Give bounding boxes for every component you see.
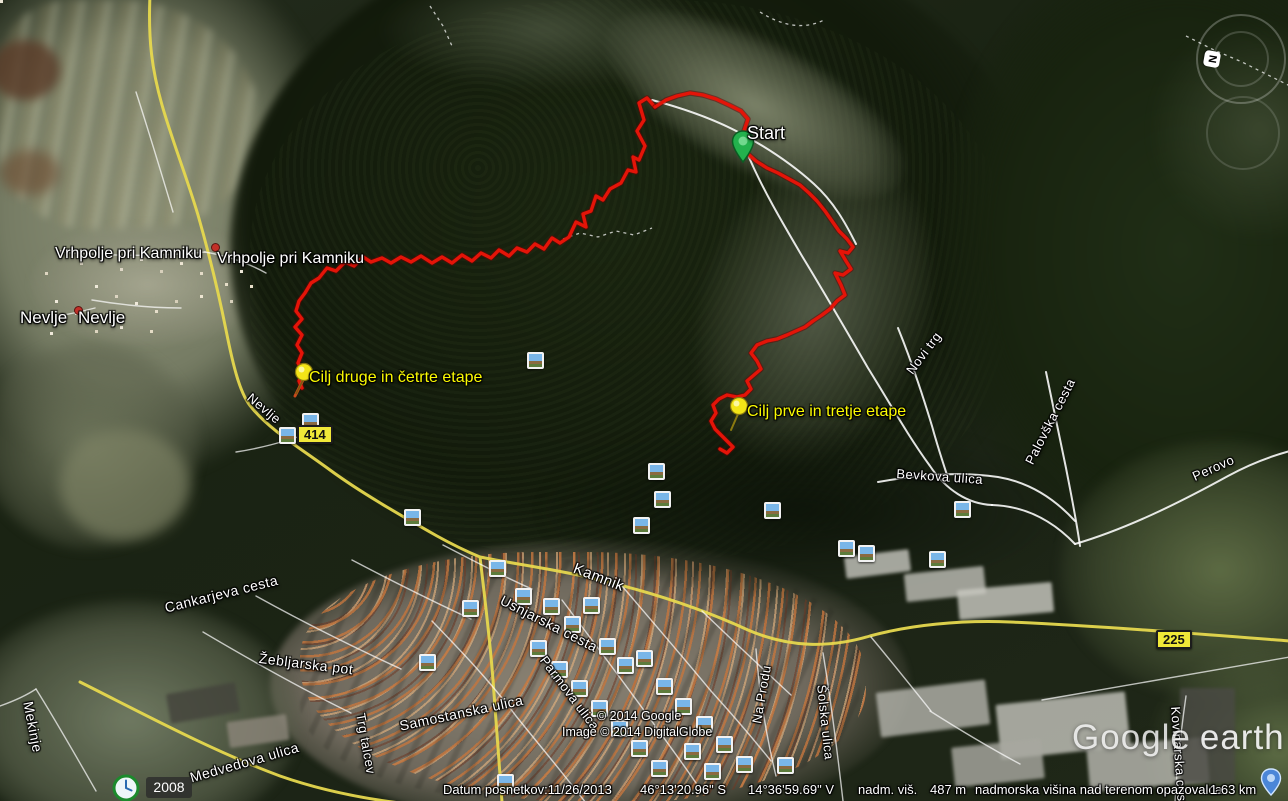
photo-icon[interactable] bbox=[648, 463, 665, 480]
gps-track[interactable] bbox=[0, 0, 1288, 801]
streetview-drop-icon[interactable] bbox=[1260, 768, 1282, 796]
photo-icon[interactable] bbox=[716, 736, 733, 753]
photo-icon[interactable] bbox=[929, 551, 946, 568]
status-eye-altitude-value: 1.63 km bbox=[1210, 782, 1256, 797]
watermark-google: Google bbox=[1072, 718, 1191, 757]
photo-icon[interactable] bbox=[404, 509, 421, 526]
photo-icon[interactable] bbox=[631, 740, 648, 757]
photo-icon[interactable] bbox=[777, 757, 794, 774]
compass-north-indicator[interactable]: N bbox=[1203, 50, 1222, 69]
watermark-earth: earth bbox=[1200, 718, 1285, 757]
gps-track-west-shadow bbox=[295, 98, 655, 388]
pushpin-label-cilj-druge[interactable]: Cilj druge in četrte etape bbox=[309, 369, 482, 387]
place-label-vrhpolje-1: Vrhpolje pri Kamniku bbox=[55, 245, 202, 263]
historical-imagery-year[interactable]: 2008 bbox=[146, 777, 192, 798]
photo-icon[interactable] bbox=[527, 352, 544, 369]
photo-icon[interactable] bbox=[419, 654, 436, 671]
road-shield-225: 225 bbox=[1156, 630, 1192, 649]
start-marker-label[interactable]: Start bbox=[747, 123, 785, 144]
place-label-vrhpolje-2: Vrhpolje pri Kamniku bbox=[217, 250, 364, 268]
gps-track-west bbox=[295, 98, 655, 388]
photo-icon[interactable] bbox=[583, 597, 600, 614]
photo-icon[interactable] bbox=[684, 743, 701, 760]
status-imagery-date: Datum posnetkov:11/26/2013 bbox=[443, 782, 612, 797]
historical-imagery-clock-icon[interactable] bbox=[112, 774, 140, 801]
photo-icon[interactable] bbox=[636, 650, 653, 667]
photo-icon[interactable] bbox=[651, 760, 668, 777]
photo-icon[interactable] bbox=[704, 763, 721, 780]
photo-icon[interactable] bbox=[736, 756, 753, 773]
photo-icon[interactable] bbox=[489, 560, 506, 577]
road-shield-414: 414 bbox=[297, 425, 333, 444]
status-latitude: 46°13'20.96" S bbox=[640, 782, 726, 797]
place-label-nevlje-2: Nevlje bbox=[78, 308, 125, 328]
photo-icon[interactable] bbox=[633, 517, 650, 534]
photo-icon[interactable] bbox=[530, 640, 547, 657]
photo-icon[interactable] bbox=[656, 678, 673, 695]
status-elevation-value: 487 m bbox=[930, 782, 966, 797]
google-earth-viewport[interactable]: Nevlje Kamnik Cankarjeva cesta Žebljarsk… bbox=[0, 0, 1288, 801]
status-eye-altitude-label: nadmorska višina nad terenom opazovalca bbox=[975, 782, 1222, 797]
google-earth-watermark: Googleearth bbox=[1072, 718, 1285, 758]
photo-icon[interactable] bbox=[617, 657, 634, 674]
status-elevation-label: nadm. viš. bbox=[858, 782, 917, 797]
photo-icon[interactable] bbox=[599, 638, 616, 655]
photo-icon[interactable] bbox=[279, 427, 296, 444]
photo-icon[interactable] bbox=[858, 545, 875, 562]
copyright-digitalglobe: Image © 2014 DigitalGlobe bbox=[562, 725, 712, 739]
place-label-nevlje-1: Nevlje bbox=[20, 308, 67, 328]
photo-icon[interactable] bbox=[654, 491, 671, 508]
status-longitude: 14°36'59.69" V bbox=[748, 782, 834, 797]
pushpin-label-cilj-prve[interactable]: Cilj prve in tretje etape bbox=[747, 403, 906, 421]
photo-icon[interactable] bbox=[462, 600, 479, 617]
photo-icon[interactable] bbox=[838, 540, 855, 557]
photo-icon[interactable] bbox=[764, 502, 781, 519]
photo-icon[interactable] bbox=[954, 501, 971, 518]
copyright-google: © 2014 Google bbox=[597, 709, 681, 723]
